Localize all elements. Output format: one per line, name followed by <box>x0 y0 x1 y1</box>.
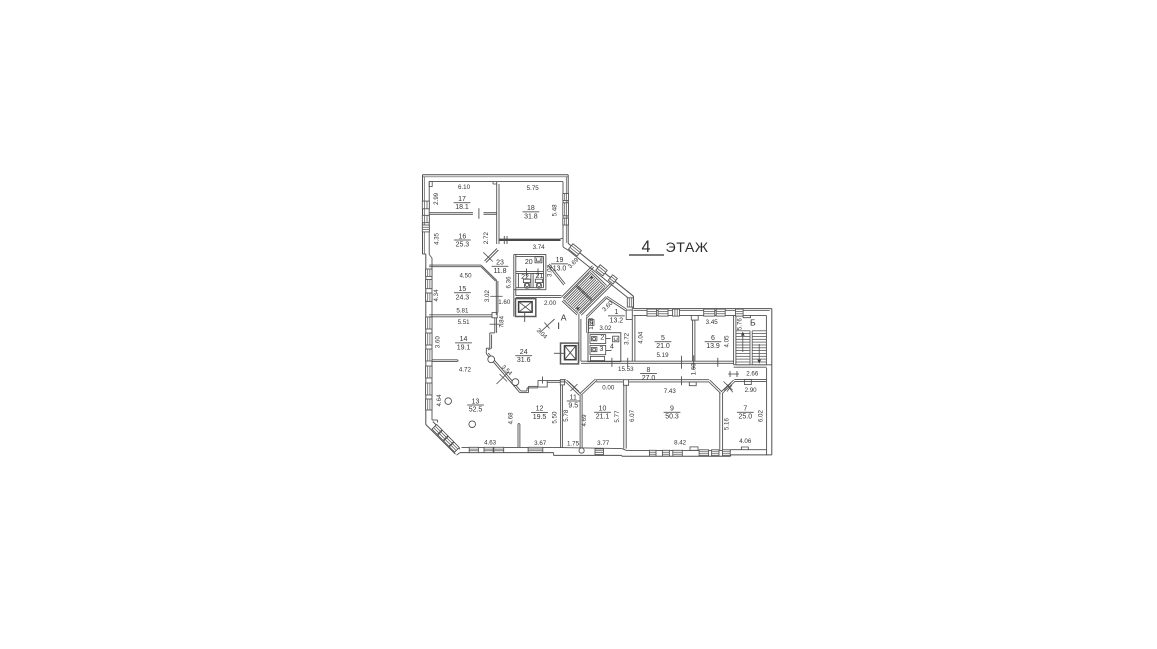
svg-text:2.90: 2.90 <box>745 387 758 394</box>
svg-text:7.84: 7.84 <box>498 315 505 328</box>
svg-text:25.3: 25.3 <box>456 242 470 249</box>
svg-text:8.42: 8.42 <box>674 440 687 447</box>
svg-text:6.10: 6.10 <box>458 184 471 191</box>
svg-text:5.75: 5.75 <box>527 185 540 192</box>
svg-text:5.81: 5.81 <box>456 308 469 315</box>
svg-text:31.6: 31.6 <box>517 357 531 364</box>
svg-text:2.66: 2.66 <box>746 370 759 377</box>
svg-text:2: 2 <box>600 335 604 342</box>
svg-text:2.00: 2.00 <box>544 300 557 307</box>
svg-text:4.63: 4.63 <box>484 440 497 447</box>
svg-text:52.5: 52.5 <box>469 407 483 414</box>
svg-text:23: 23 <box>496 260 504 267</box>
svg-text:4: 4 <box>610 344 614 351</box>
svg-text:17: 17 <box>458 196 466 203</box>
svg-text:4.69: 4.69 <box>581 414 588 427</box>
svg-text:50.3: 50.3 <box>665 414 679 421</box>
svg-text:21: 21 <box>536 273 544 280</box>
svg-text:11: 11 <box>570 394 577 401</box>
svg-text:5.51: 5.51 <box>458 319 471 326</box>
svg-text:5.78: 5.78 <box>563 409 570 422</box>
svg-text:А: А <box>561 313 567 323</box>
svg-text:21.0: 21.0 <box>656 343 670 350</box>
svg-text:10: 10 <box>599 406 607 413</box>
svg-text:0.00: 0.00 <box>602 385 615 392</box>
svg-text:1.60: 1.60 <box>498 299 511 306</box>
svg-text:4.64: 4.64 <box>436 394 443 407</box>
svg-text:9.5: 9.5 <box>568 403 578 410</box>
svg-text:20: 20 <box>525 259 533 266</box>
svg-text:4.34: 4.34 <box>433 289 440 302</box>
svg-text:4.35: 4.35 <box>433 232 440 245</box>
svg-text:5.76: 5.76 <box>737 318 744 331</box>
svg-text:7.43: 7.43 <box>664 388 677 395</box>
svg-text:ЭТАЖ: ЭТАЖ <box>666 240 709 256</box>
svg-text:3.60: 3.60 <box>434 336 441 349</box>
svg-text:15: 15 <box>459 286 467 293</box>
svg-text:1: 1 <box>614 309 618 316</box>
svg-text:21.1: 21.1 <box>596 414 610 421</box>
svg-text:27.0: 27.0 <box>642 375 656 382</box>
svg-text:5.50: 5.50 <box>551 411 558 424</box>
svg-text:9: 9 <box>670 406 674 413</box>
svg-text:13.0: 13.0 <box>553 265 567 272</box>
svg-text:14: 14 <box>460 336 468 343</box>
svg-text:18: 18 <box>527 205 535 212</box>
svg-text:6.36: 6.36 <box>506 276 513 289</box>
svg-text:7: 7 <box>743 406 747 413</box>
svg-text:13: 13 <box>472 398 480 405</box>
svg-text:Б: Б <box>750 318 756 328</box>
svg-text:3.02: 3.02 <box>546 264 553 277</box>
svg-text:1.60: 1.60 <box>691 363 698 376</box>
svg-text:5.77: 5.77 <box>614 410 621 423</box>
svg-text:3: 3 <box>600 346 604 353</box>
svg-text:4.06: 4.06 <box>739 438 752 445</box>
svg-text:5.48: 5.48 <box>551 204 558 217</box>
svg-text:13.9: 13.9 <box>706 343 720 350</box>
svg-text:6.07: 6.07 <box>629 409 636 422</box>
svg-text:3.02: 3.02 <box>599 325 612 332</box>
svg-text:22: 22 <box>521 274 529 281</box>
svg-text:6.02: 6.02 <box>758 410 765 423</box>
svg-text:2.99: 2.99 <box>433 192 440 205</box>
svg-text:16: 16 <box>459 233 467 240</box>
svg-text:1.75: 1.75 <box>567 441 580 448</box>
svg-text:5.19: 5.19 <box>656 352 669 359</box>
svg-text:4.72: 4.72 <box>459 366 472 373</box>
svg-text:6: 6 <box>711 335 715 342</box>
svg-text:24: 24 <box>520 349 528 356</box>
svg-text:13.2: 13.2 <box>610 317 624 324</box>
svg-text:2.72: 2.72 <box>483 232 490 245</box>
svg-text:3.77: 3.77 <box>597 440 610 447</box>
svg-text:3.74: 3.74 <box>533 244 546 251</box>
svg-text:4: 4 <box>641 238 650 256</box>
svg-text:15.53: 15.53 <box>618 366 634 373</box>
svg-text:19.1: 19.1 <box>457 344 471 351</box>
svg-text:11.8: 11.8 <box>493 268 506 275</box>
svg-text:4.05: 4.05 <box>724 335 731 348</box>
svg-text:3.67: 3.67 <box>534 440 547 447</box>
svg-text:8: 8 <box>647 367 651 374</box>
svg-text:5: 5 <box>661 335 665 342</box>
svg-text:3.02: 3.02 <box>484 290 491 303</box>
svg-text:1.28: 1.28 <box>588 317 595 330</box>
svg-text:18.1: 18.1 <box>455 204 469 211</box>
svg-text:4.04: 4.04 <box>637 331 644 344</box>
svg-text:19.5: 19.5 <box>533 414 547 421</box>
svg-text:3.45: 3.45 <box>706 319 719 326</box>
svg-text:5.16: 5.16 <box>723 418 730 431</box>
svg-text:25.0: 25.0 <box>738 414 752 421</box>
svg-text:12: 12 <box>536 406 544 413</box>
svg-text:4.68: 4.68 <box>508 412 515 425</box>
svg-text:4.50: 4.50 <box>459 272 472 279</box>
svg-text:19: 19 <box>556 257 564 264</box>
svg-text:24.3: 24.3 <box>456 294 470 301</box>
svg-text:3.72: 3.72 <box>623 332 630 345</box>
svg-text:31.8: 31.8 <box>524 213 538 220</box>
